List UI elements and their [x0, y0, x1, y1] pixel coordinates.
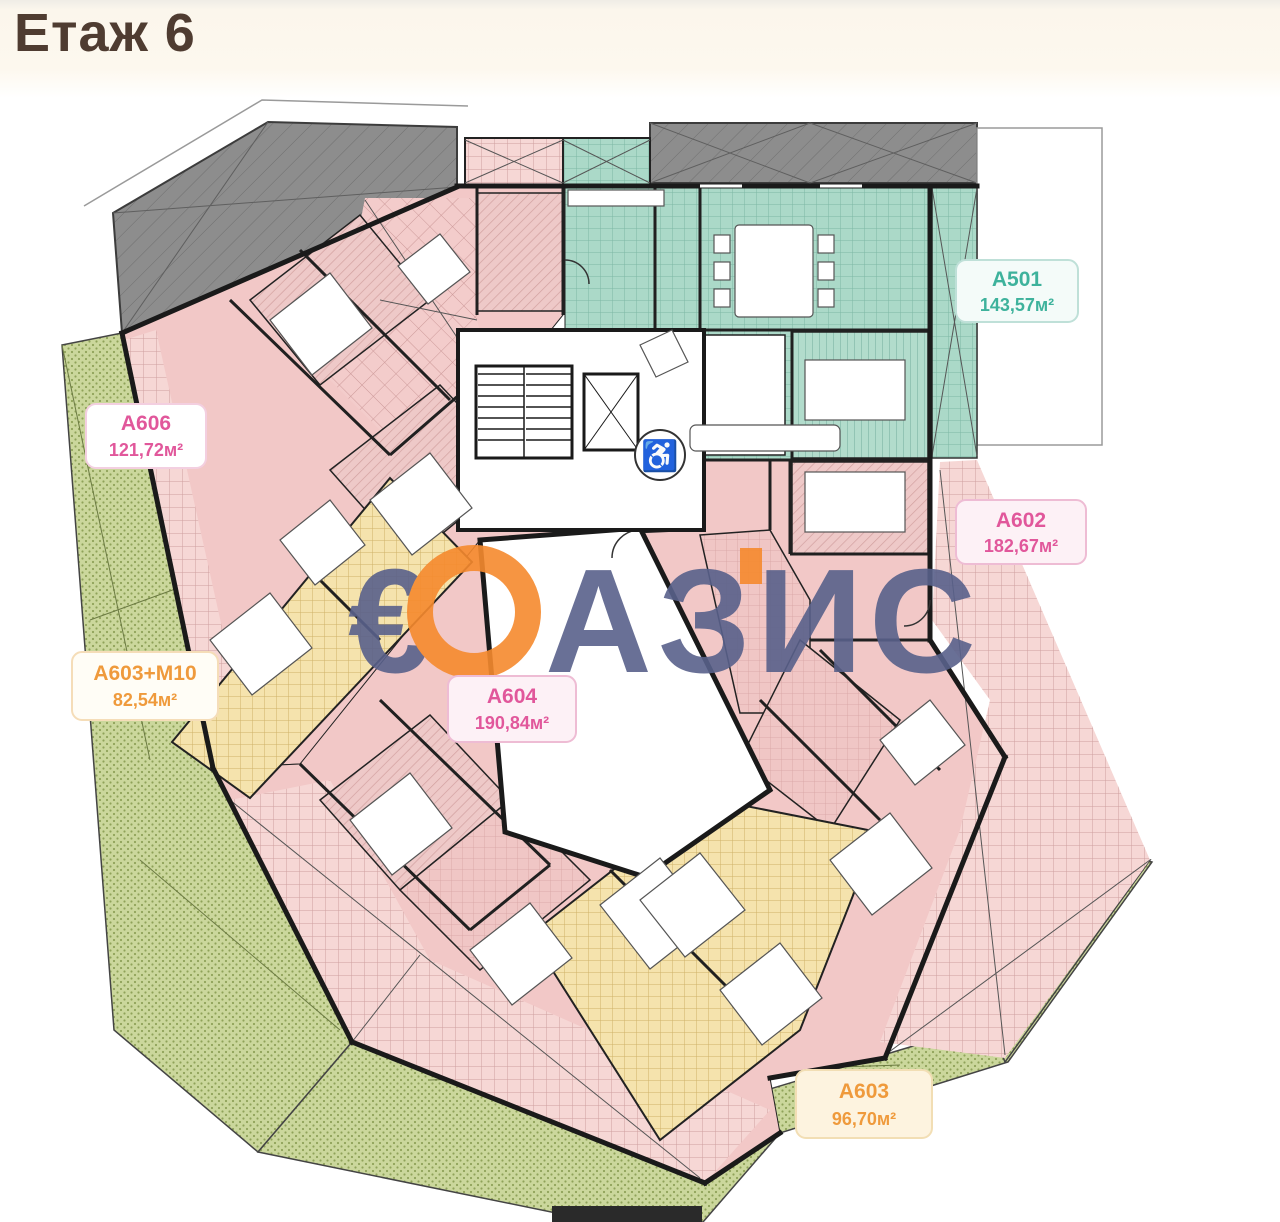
staircase: [476, 366, 572, 458]
roof-top-strip: [650, 123, 977, 183]
label-a501-id: A501: [992, 268, 1043, 291]
watermark-letters: АЗИС: [545, 539, 982, 704]
label-a602-area: 182,67м²: [984, 536, 1058, 556]
label-a602: A602 182,67м²: [956, 500, 1086, 564]
elevator: [584, 374, 638, 450]
label-a603-m10-id: A603+M10: [93, 662, 196, 685]
dining-table-a501: [735, 225, 813, 317]
label-a606-id: A606: [121, 412, 171, 435]
label-a604: A604 190,84м²: [448, 676, 576, 742]
chair: [714, 262, 730, 280]
label-a501: A501 143,57м²: [956, 260, 1078, 322]
label-a606: A606 121,72м²: [86, 404, 206, 468]
label-a606-area: 121,72м²: [109, 440, 183, 460]
label-a603-area: 96,70м²: [832, 1109, 896, 1129]
chair: [714, 235, 730, 253]
watermark-orange-accent: [740, 548, 762, 584]
label-a603-id: A603: [839, 1080, 889, 1103]
label-a603-m10-area: 82,54м²: [113, 690, 177, 710]
floor-plan-canvas: ♿: [0, 0, 1280, 1222]
label-a603: A603 96,70м²: [796, 1070, 932, 1138]
chair: [818, 289, 834, 307]
top-balconies: [465, 138, 650, 185]
bed-a501: [805, 360, 905, 420]
chair: [818, 262, 834, 280]
wheelchair-icon: ♿: [641, 438, 678, 473]
floor-plan-page: Етаж 6: [0, 0, 1280, 1222]
bottom-wall-bar: [552, 1206, 702, 1222]
bed-a602-1: [805, 472, 905, 532]
label-a602-id: A602: [996, 509, 1046, 532]
sofa-a501: [690, 425, 840, 451]
chair: [818, 235, 834, 253]
label-a604-area: 190,84м²: [475, 713, 549, 733]
bedroom-a606-top: [477, 193, 563, 311]
chair: [714, 289, 730, 307]
kitchen-counter-a501: [568, 190, 664, 206]
label-a604-id: A604: [487, 685, 538, 708]
label-a603-m10: A603+M10 82,54м²: [72, 652, 218, 720]
label-a501-area: 143,57м²: [980, 295, 1054, 315]
